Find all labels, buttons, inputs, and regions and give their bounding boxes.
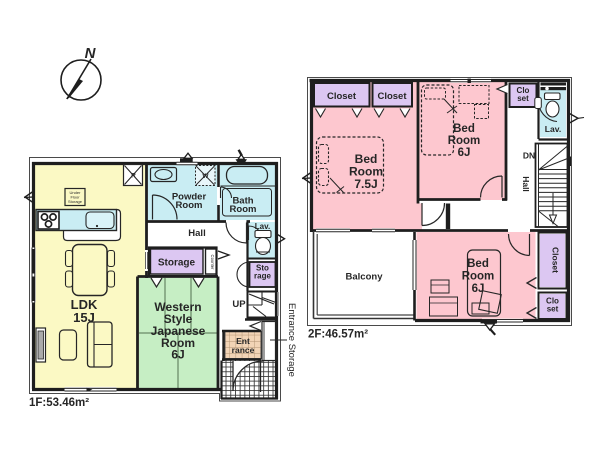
- svg-text:set: set: [547, 305, 559, 314]
- svg-text:Closet: Closet: [327, 91, 357, 102]
- svg-text:Entrance Storage: Entrance Storage: [286, 303, 297, 377]
- svg-text:Room: Room: [448, 135, 481, 147]
- svg-text:6J: 6J: [171, 348, 184, 362]
- svg-text:Storage: Storage: [158, 258, 196, 269]
- svg-text:Storage: Storage: [68, 199, 83, 204]
- svg-text:Bed: Bed: [453, 123, 475, 135]
- svg-text:Lav.: Lav.: [545, 124, 561, 134]
- svg-text:7.5J: 7.5J: [354, 177, 377, 191]
- svg-text:6J: 6J: [472, 283, 485, 295]
- svg-text:N: N: [85, 45, 97, 62]
- svg-text:R: R: [131, 173, 136, 180]
- svg-text:1F:53.46m²: 1F:53.46m²: [29, 397, 89, 409]
- svg-text:Closet: Closet: [551, 247, 561, 273]
- svg-text:Hall: Hall: [521, 176, 531, 192]
- svg-text:W: W: [202, 173, 209, 180]
- svg-text:Balcony: Balcony: [346, 272, 384, 283]
- svg-text:6J: 6J: [458, 147, 471, 159]
- svg-text:15J: 15J: [73, 310, 95, 325]
- svg-text:Lav.: Lav.: [255, 222, 270, 231]
- svg-text:Room: Room: [462, 271, 495, 283]
- svg-text:rage: rage: [254, 272, 271, 281]
- svg-text:rance: rance: [232, 345, 255, 355]
- svg-text:UP: UP: [232, 299, 246, 310]
- svg-text:DN: DN: [523, 151, 535, 161]
- svg-text:Hall: Hall: [188, 228, 205, 239]
- svg-text:2F:46.57m²: 2F:46.57m²: [308, 329, 368, 341]
- svg-text:Room: Room: [230, 204, 257, 215]
- svg-text:Closet: Closet: [377, 91, 407, 102]
- svg-text:Counter: Counter: [210, 255, 215, 271]
- svg-text:Room: Room: [176, 200, 203, 211]
- svg-text:set: set: [517, 94, 529, 103]
- svg-text:Bed: Bed: [467, 258, 489, 270]
